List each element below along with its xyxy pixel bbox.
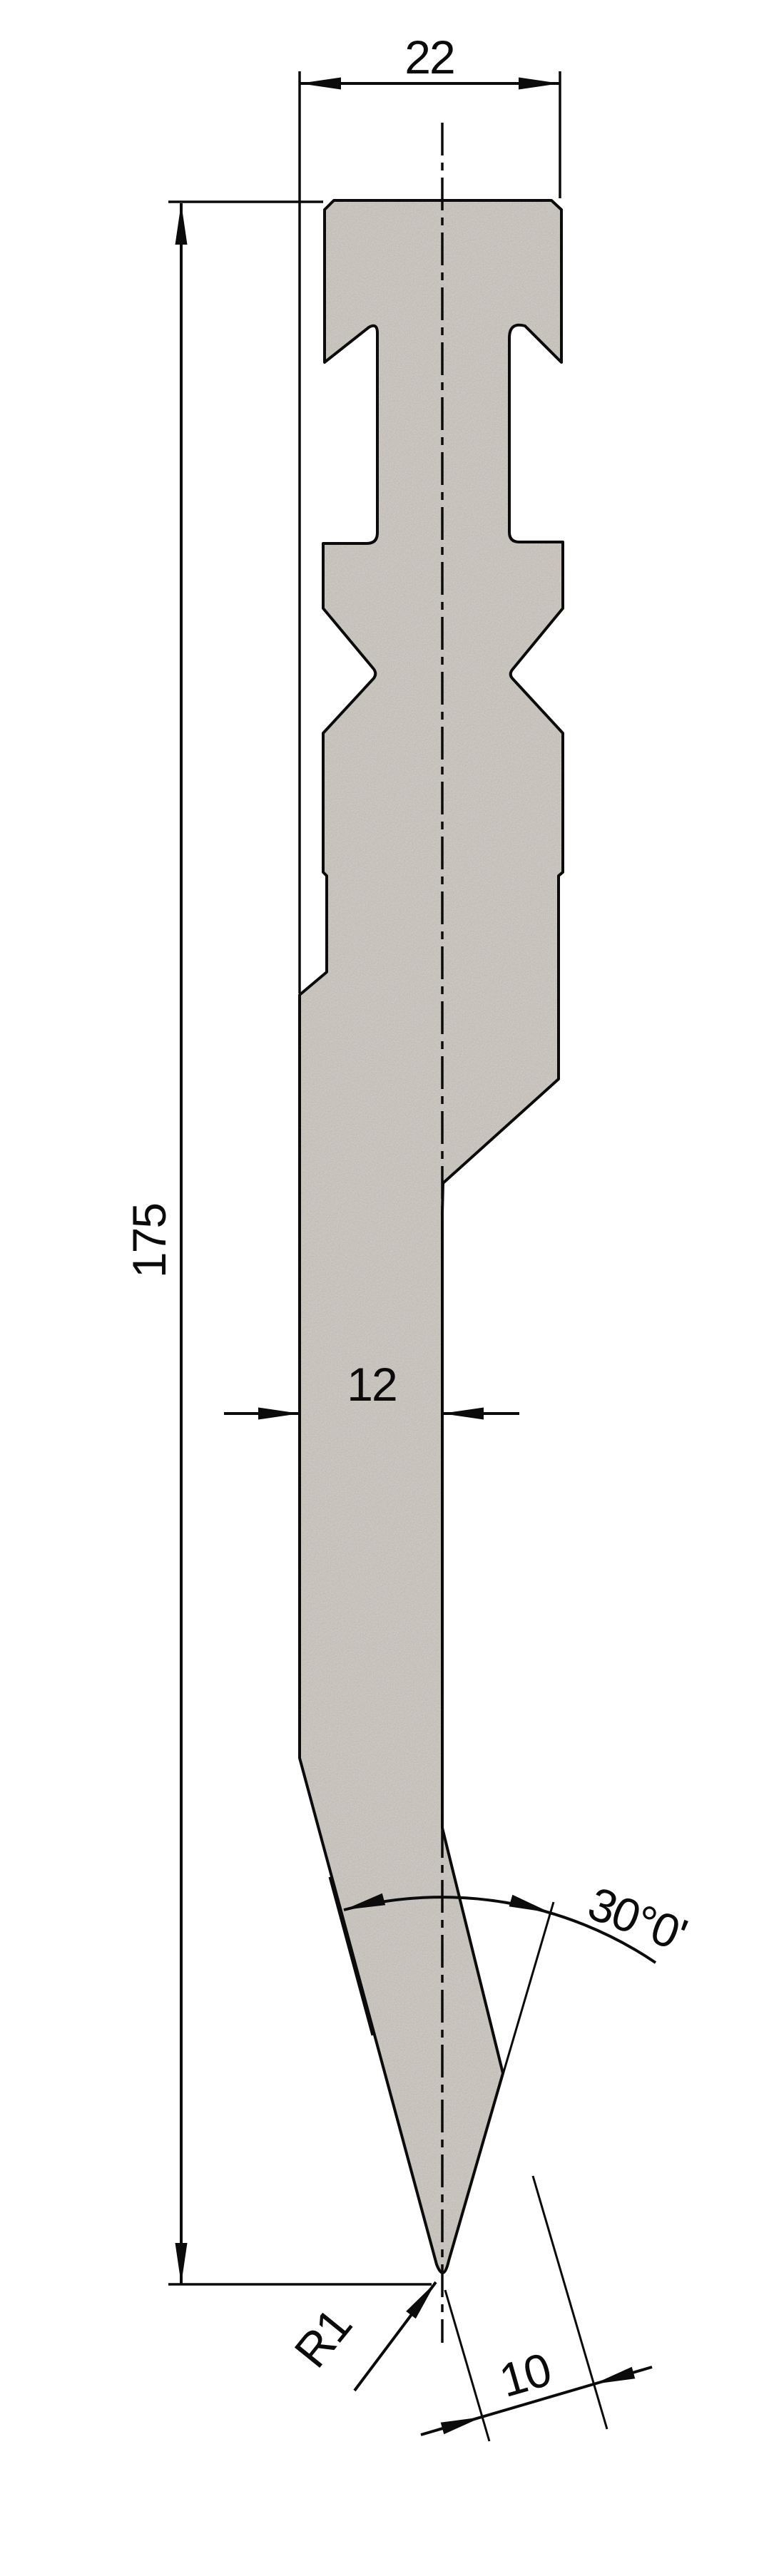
- dim-tip-radius-label: R1: [284, 2299, 361, 2377]
- arrowhead-tip: [406, 2282, 436, 2319]
- arrowhead-right: [594, 2367, 635, 2384]
- arrowhead-left: [441, 2417, 482, 2434]
- punch-grain-texture: [300, 200, 563, 2273]
- angle-ext-line-right: [497, 1902, 554, 2094]
- drawing-sheet: 22 175 12 30°0' R1 10: [0, 0, 764, 2576]
- arrowhead-right: [519, 78, 560, 90]
- arrowhead-right: [442, 1408, 484, 1420]
- arrowhead-bottom: [175, 2243, 188, 2284]
- punch-body: [300, 200, 563, 2273]
- dim-overall-height-label: 175: [123, 1204, 175, 1278]
- dim-tip-angle-label: 30°0': [581, 1876, 693, 1961]
- arrowhead-top: [175, 203, 188, 245]
- arrowhead-right: [509, 1895, 551, 1913]
- ext-line-left: [445, 2290, 489, 2441]
- arrowhead-left: [300, 78, 341, 90]
- technical-drawing: 22 175 12 30°0' R1 10: [0, 0, 764, 2576]
- dimension-blade-width: 12: [224, 1358, 519, 1420]
- arrowhead-left: [258, 1408, 300, 1420]
- dim-top-width-label: 22: [404, 31, 454, 83]
- dim-blade-width-label: 12: [347, 1358, 396, 1411]
- dimension-tip-radius: R1: [284, 2282, 436, 2391]
